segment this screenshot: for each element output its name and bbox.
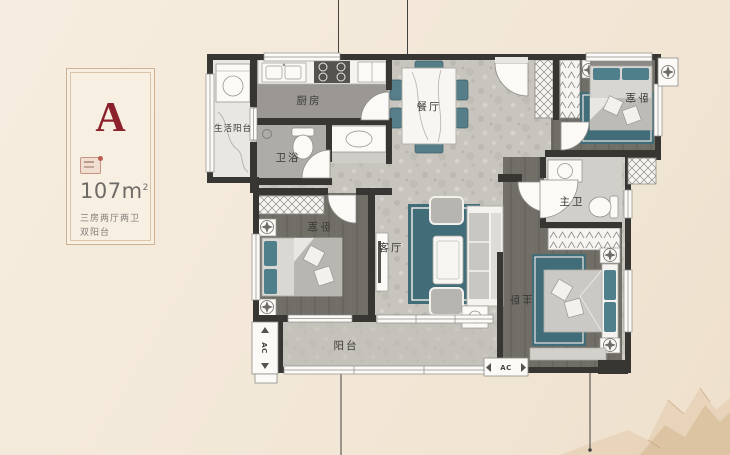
label-bedroom-left: 卧室 [306, 220, 331, 233]
entry-shoe-cabinet [535, 60, 553, 118]
label-master-bedroom: 主卧 [508, 293, 533, 306]
unit-tagline: 三房两厅两卫 双阳台 [80, 212, 141, 240]
equipment-platform-right [628, 158, 656, 184]
label-service-balcony: 生活阳台 [214, 123, 252, 134]
kitchen-fixtures [258, 60, 388, 84]
label-dining: 餐厅 [417, 100, 442, 113]
tagline-line1: 三房两厅两卫 [80, 212, 141, 226]
label-kitchen: 厨房 [297, 94, 322, 107]
ac-label-bottom: AC [500, 364, 512, 372]
label-master-bath: 主卫 [560, 196, 585, 208]
unit-info-card: A 107m2 三房两厅两卫 双阳台 [66, 68, 155, 245]
label-living: 客厅 [379, 241, 404, 254]
area-superscript: 2 [143, 183, 149, 193]
label-bath: 卫浴 [276, 152, 301, 164]
ac-label-left: AC [260, 342, 268, 354]
ac-unit-bottom: AC [484, 358, 528, 376]
tagline-line2: 双阳台 [80, 226, 141, 240]
ac-unit-left: AC [252, 322, 278, 383]
area-seal-icon [80, 157, 101, 174]
unit-name: A [80, 95, 141, 141]
unit-area: 107m2 [80, 179, 141, 203]
area-unit: m [122, 179, 143, 203]
seal-dot-icon [98, 156, 103, 161]
area-number: 107 [80, 179, 122, 203]
washing-machine [216, 64, 250, 102]
mountain-illustration [560, 388, 730, 455]
floorplan-page: { "card": { "unit_label": "A", "area_num… [0, 0, 730, 455]
label-balcony: 阳台 [334, 339, 359, 352]
unit-card-frame: A 107m2 三房两厅两卫 双阳台 [70, 72, 151, 241]
label-bedroom-right: 卧室 [624, 91, 649, 104]
